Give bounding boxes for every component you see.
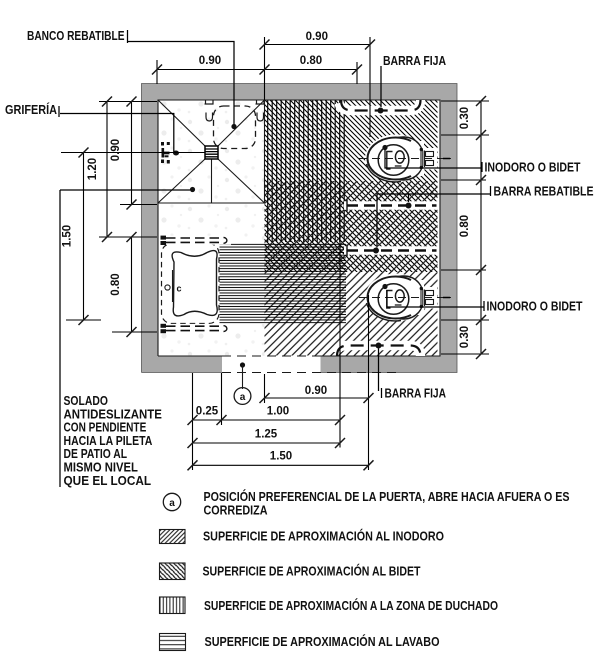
svg-text:1.50: 1.50 [270,451,292,463]
svg-text:a: a [169,498,175,509]
svg-text:1.50: 1.50 [62,225,74,247]
svg-text:0.90: 0.90 [199,55,221,67]
svg-text:GRIFERÍA: GRIFERÍA [5,102,57,117]
svg-text:SUPERFICIE DE APROXIMACIÓN A L: SUPERFICIE DE APROXIMACIÓN A LA ZONA DE … [204,598,498,613]
svg-text:1.20: 1.20 [87,158,99,180]
svg-text:POSICIÓN PREFERENCIAL DE LA PU: POSICIÓN PREFERENCIAL DE LA PUERTA, ABRE… [204,489,570,504]
svg-text:1.25: 1.25 [255,429,278,441]
svg-text:0.90: 0.90 [110,139,122,161]
svg-text:CORREDIZA: CORREDIZA [204,504,268,518]
svg-text:0.25: 0.25 [196,406,219,418]
svg-text:INODORO O BIDET: INODORO O BIDET [485,161,581,175]
svg-text:0.80: 0.80 [300,55,322,67]
svg-text:0.80: 0.80 [110,273,122,295]
svg-text:0.30: 0.30 [459,107,471,129]
svg-text:SUPERFICIE DE APROXIMACIÓN AL: SUPERFICIE DE APROXIMACIÓN AL BIDET [203,564,421,579]
svg-text:BARRA FIJA: BARRA FIJA [385,387,447,401]
svg-text:SUPERFICIE DE APROXIMACIÓN AL: SUPERFICIE DE APROXIMACIÓN AL LAVABO [205,634,440,649]
svg-text:0.30: 0.30 [459,326,471,348]
svg-text:a: a [240,392,246,403]
svg-text:INODORO O BIDET: INODORO O BIDET [487,300,583,314]
svg-text:QUE EL LOCAL: QUE EL LOCAL [64,474,152,488]
svg-text:SOLADO: SOLADO [64,394,109,408]
svg-text:ANTIDESLIZANTE: ANTIDESLIZANTE [64,407,162,421]
svg-text:HACIA LA PILETA: HACIA LA PILETA [64,434,153,448]
svg-text:BANCO REBATIBLE: BANCO REBATIBLE [27,29,125,43]
svg-text:MISMO NIVEL: MISMO NIVEL [64,461,139,475]
svg-text:1.00: 1.00 [267,406,289,418]
svg-text:c: c [177,284,182,294]
svg-text:0.90: 0.90 [306,31,328,43]
svg-text:BARRA FIJA: BARRA FIJA [383,54,446,68]
svg-text:DE PATIO AL: DE PATIO AL [64,447,128,461]
svg-text:CON PENDIENTE: CON PENDIENTE [64,421,147,435]
svg-text:BARRA REBATIBLE: BARRA REBATIBLE [494,185,594,199]
svg-text:SUPERFICIE DE APROXIMACIÓN AL: SUPERFICIE DE APROXIMACIÓN AL INODORO [203,529,444,544]
svg-text:0.90: 0.90 [305,385,327,397]
svg-text:0.80: 0.80 [459,215,471,237]
